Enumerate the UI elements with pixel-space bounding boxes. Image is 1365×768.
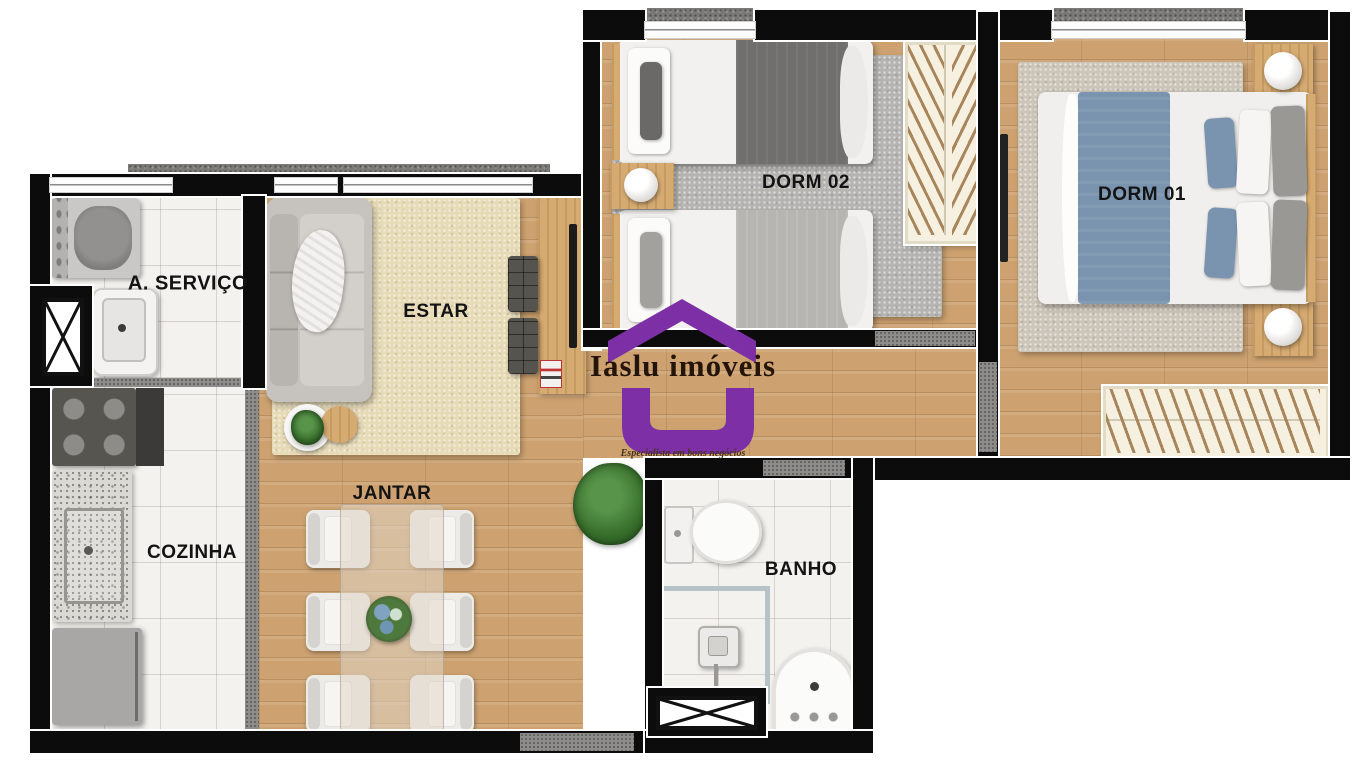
toilet-flush-button: [674, 530, 681, 537]
label-servico: A. SERVIÇO: [128, 273, 248, 296]
label-dorm02: DORM 02: [762, 172, 850, 194]
door-dorm01: [979, 362, 997, 452]
wardrobe-dorm01: [1103, 386, 1329, 462]
stove: [52, 388, 136, 466]
tv-dorm01: [1000, 134, 1008, 262]
sink-taps: [790, 712, 838, 722]
lamp-dorm02: [624, 168, 658, 202]
floor-plan: A. SERVIÇO ESTAR DORM 02 DORM 01 COZINHA…: [0, 0, 1365, 768]
window-dorm01: [1052, 22, 1245, 38]
lamp-dorm01-bottom: [1264, 308, 1302, 346]
label-dorm01: DORM 01: [1098, 184, 1186, 206]
washer-drum: [74, 206, 132, 270]
coffee-plant: [291, 410, 324, 445]
table-centerpiece: [366, 596, 412, 642]
door-dorm02: [875, 331, 975, 346]
pillow-white-bottom: [1236, 201, 1272, 287]
bed1-headboard: [612, 44, 620, 160]
pillow-blue-bottom: [1204, 207, 1239, 279]
bed1-duvet-fold: [840, 46, 868, 158]
wall-top-dorm02-a: [583, 10, 645, 40]
logo-wordmark: Iaslu imóveis: [590, 348, 776, 384]
bed1-blanket: [736, 40, 848, 164]
single-bed-1: [618, 40, 873, 164]
bathroom-sink: [772, 648, 856, 734]
pillow-gray-top: [1270, 105, 1307, 196]
shaft-banho: [656, 696, 758, 730]
toilet-bowl: [690, 500, 762, 564]
wardrobe-dorm01-hangers: [1106, 389, 1320, 453]
media-device: [540, 360, 562, 388]
brand-logo: Iaslu imóveis Especialista em bons negóc…: [575, 290, 791, 470]
sofa: [266, 198, 372, 402]
label-banho: BANHO: [765, 559, 837, 581]
double-bed-headboard: [1306, 94, 1316, 302]
refrigerator: [52, 628, 142, 725]
label-cozinha: COZINHA: [147, 542, 237, 564]
pillow-gray-bottom: [1270, 199, 1307, 290]
pillow-blue-top: [1204, 117, 1239, 189]
corner-plant: [573, 463, 647, 545]
wall-left-outer: [30, 174, 50, 753]
bed1-pillow-accent: [640, 62, 662, 140]
shower-fixture-inner: [708, 636, 728, 656]
window-estar-b: [344, 178, 532, 192]
logo-house-base-icon: [620, 388, 756, 456]
laundry-sink-drain: [118, 324, 126, 332]
divider-cozinha-jantar: [245, 388, 259, 731]
counter-dark-segment: [136, 388, 164, 466]
logo-tagline: Especialista em bons negócios: [621, 448, 746, 459]
kitchen-faucet: [84, 546, 93, 555]
wall-top-dorm-mid: [755, 10, 1052, 40]
shower-glass-horizontal: [662, 586, 770, 591]
door-entrance: [520, 733, 634, 751]
label-jantar: JANTAR: [353, 483, 432, 505]
laundry-sink: [92, 288, 158, 376]
lamp-dorm01-top: [1264, 52, 1302, 90]
window-servico: [50, 178, 172, 192]
shower-fixture: [698, 626, 740, 668]
refrigerator-handle: [135, 632, 138, 721]
pouf-2: [508, 318, 538, 374]
coffee-table: [321, 406, 358, 443]
kitchen-counter: [52, 470, 132, 622]
wardrobe-dorm02-left: [908, 45, 944, 235]
bed2-duvet-fold: [840, 216, 868, 326]
washer-control-panel: [50, 198, 68, 278]
window-dorm02: [645, 22, 755, 38]
label-estar: ESTAR: [403, 301, 468, 323]
wall-banho-right: [853, 458, 873, 753]
pouf-1: [508, 256, 538, 312]
window-estar-a: [275, 178, 337, 192]
washing-machine: [50, 198, 140, 278]
wall-south-right: [853, 458, 1350, 480]
kitchen-sink: [64, 508, 124, 604]
wardrobe-dorm02-divider: [944, 45, 946, 235]
sink-drain: [810, 682, 819, 691]
pillow-white-top: [1236, 109, 1272, 195]
shaft-servico: [42, 298, 84, 376]
shower-glass-vertical: [765, 586, 770, 704]
wall-dorm01-right: [1330, 12, 1350, 480]
